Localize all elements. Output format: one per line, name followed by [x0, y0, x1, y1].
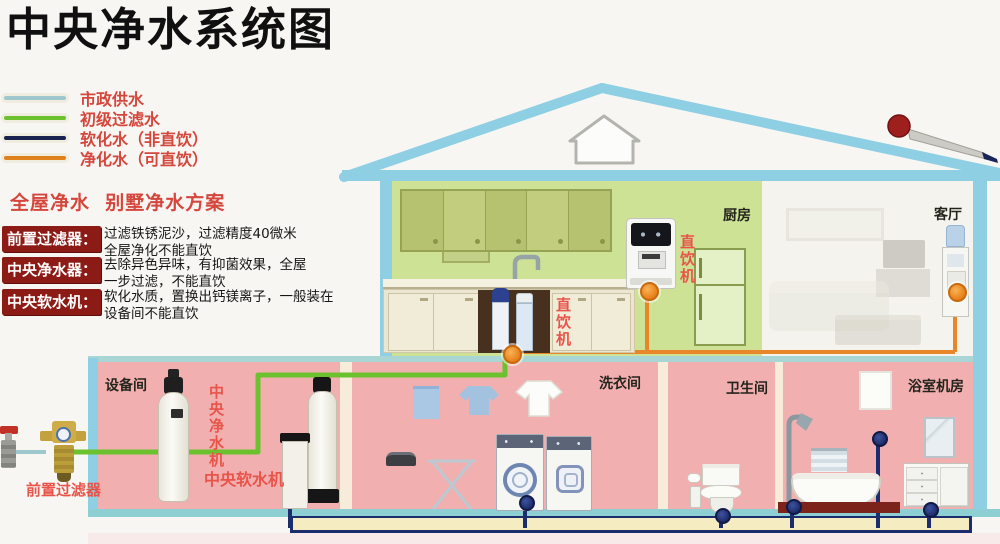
cabinet-door — [388, 293, 434, 351]
room-label-bath-machine: 浴室机房 — [908, 376, 964, 396]
upper-cabinets — [400, 189, 612, 252]
purified-outlet-dot — [948, 283, 967, 302]
countertop — [383, 279, 635, 289]
central-softener-tank — [308, 391, 337, 501]
tv — [883, 240, 925, 268]
label-central-softener: 中央软水机 — [204, 466, 284, 490]
roof-right-slope — [602, 88, 1000, 174]
room-label-kitchen: 厨房 — [723, 205, 751, 225]
glossary-term-purifier: 中央净水器： — [2, 257, 101, 283]
room-label-equipment: 设备间 — [105, 375, 147, 395]
brine-tank — [282, 441, 308, 509]
roof-pin-tip — [982, 152, 998, 163]
washer-door — [503, 463, 537, 497]
legend-line-softened — [4, 136, 66, 140]
glossary-text: 软化水质，置换出钙镁离子，一般装在 设备间不能直饮 — [104, 289, 334, 322]
dormer — [570, 116, 639, 163]
cabinet-door — [940, 467, 968, 506]
sink-filter-cartridge — [492, 302, 509, 350]
dispenser-slot — [638, 251, 666, 269]
softened-outlet-dot — [923, 502, 939, 518]
bath-cabinet — [903, 463, 969, 507]
legend: 市政供水 初级过滤水 软化水（非直饮） 净化水（可直饮） — [4, 88, 208, 168]
legend-line-filtered — [4, 116, 66, 120]
toilet-tank — [702, 464, 740, 486]
mirror — [924, 417, 955, 458]
glossary-line: 去除异色异味，有抑菌效果，全屋 — [104, 257, 307, 274]
cabinet-door — [569, 191, 610, 250]
cabinet-door — [433, 293, 479, 351]
glossary-line: 设备间不能直饮 — [104, 306, 334, 323]
softened-outlet-dot — [872, 431, 888, 447]
legend-line-municipal — [4, 96, 66, 100]
sink-filter-cartridge-cap — [516, 293, 533, 303]
fridge — [694, 248, 746, 346]
water-cooler-bottle — [946, 225, 965, 247]
cleaner-bottle — [690, 486, 701, 508]
glossary-term-prefilter: 前置过滤器： — [2, 226, 101, 252]
pre-filter-gauge — [56, 427, 71, 442]
label-sink-drinking-machine: 直饮机 — [555, 297, 571, 353]
softened-outlet-dot — [715, 508, 731, 524]
central-softener-valve — [306, 489, 339, 503]
legend-row: 软化水（非直饮） — [4, 128, 208, 148]
roof-pin-head — [888, 115, 910, 137]
softened-outlet-dot — [519, 495, 535, 511]
cabinet-door — [444, 191, 486, 250]
wall-drinking-dispenser — [626, 218, 676, 289]
glossary-line: 过滤铁锈泥沙，过滤精度40微米 — [104, 226, 297, 243]
main-valve-stem — [5, 433, 12, 440]
legend-row: 市政供水 — [4, 88, 208, 108]
central-water-purification-diagram: 中央净水系统图 市政供水 初级过滤水 软化水（非直饮） 净化水（可直饮） 全屋净… — [0, 0, 1000, 544]
page-title: 中央净水系统图 — [6, 6, 335, 53]
drying-rack — [428, 461, 476, 509]
sink-filter-cartridge — [516, 303, 533, 351]
water-cooler-body — [942, 247, 969, 317]
pre-filter-body — [54, 445, 74, 473]
toilet-paper-roll — [687, 473, 701, 483]
coffee-table — [835, 315, 921, 345]
hanging-shirt-white — [516, 381, 562, 416]
legend-row: 净化水（可直饮） — [4, 148, 208, 168]
wall-picture — [786, 208, 884, 241]
label-wall-drinking-machine: 直饮机 — [679, 234, 695, 290]
dryer-door — [556, 465, 584, 493]
glossary-line: 一步过滤，不能直饮 — [104, 274, 307, 291]
room-label-bathroom: 卫生间 — [726, 378, 768, 398]
hanging-shirt-blue — [459, 386, 499, 415]
glossary-term-softener: 中央软水机： — [2, 289, 101, 315]
dryer-machine — [546, 436, 592, 511]
sink-filter-cartridge-cap — [492, 288, 509, 302]
under-sink-opening — [478, 290, 550, 353]
glossary-line: 软化水质，置换出钙镁离子，一般装在 — [104, 289, 334, 306]
room-label-laundry: 洗衣间 — [599, 373, 641, 393]
label-central-purifier: 中央净水机 — [208, 384, 224, 474]
legend-label: 净化水（可直饮） — [80, 146, 208, 170]
room-label-living: 客厅 — [934, 204, 962, 224]
dispenser-screen — [631, 223, 671, 246]
fridge-handle — [699, 294, 702, 320]
dryer-control-panel — [547, 437, 591, 450]
purified-outlet-dot — [503, 345, 522, 364]
purified-outlet-dot — [640, 282, 659, 301]
towel-rack — [811, 448, 847, 472]
iron — [386, 452, 416, 466]
glossary-text: 去除异色异味，有抑菌效果，全屋 一步过滤，不能直饮 — [104, 257, 307, 290]
cabinet-drawer — [906, 480, 938, 493]
cabinet-door — [527, 191, 569, 250]
cabinet-door — [591, 293, 631, 351]
range-hood — [442, 252, 490, 263]
cabinet-drawer — [906, 467, 938, 480]
window-panel — [859, 371, 892, 410]
hanging-towel — [413, 386, 439, 419]
label-pre-filter: 前置过滤器 — [26, 479, 101, 500]
plan-title: 全屋净水 别墅净水方案 — [10, 188, 225, 215]
main-valve-body — [1, 440, 16, 468]
central-purifier-tank — [158, 392, 189, 502]
glossary-text: 过滤铁锈泥沙，过滤精度40微米 全屋净化不能直饮 — [104, 226, 297, 259]
cabinet-door — [402, 191, 444, 250]
legend-line-purified — [4, 156, 66, 160]
fridge-handle — [699, 258, 702, 278]
washer-control-panel — [497, 435, 543, 448]
legend-row: 初级过滤水 — [4, 108, 208, 128]
softened-outlet-dot — [786, 499, 802, 515]
cabinet-door — [486, 191, 528, 250]
roof-left-slope — [344, 88, 602, 177]
